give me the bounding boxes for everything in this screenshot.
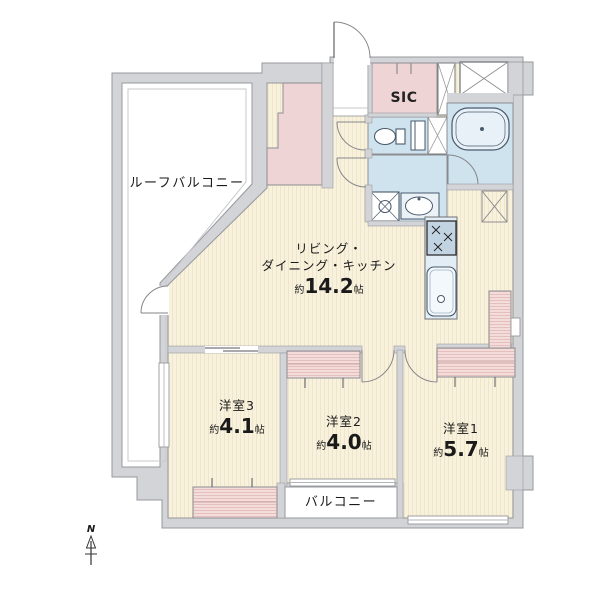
bedroom1-name: 洋室1 (433, 421, 488, 438)
vanity-sink-icon (401, 193, 439, 219)
entrance-door (334, 22, 370, 65)
bedroom3-size: 約4.1帖 (209, 415, 264, 437)
bedroom3-size-unit: 帖 (255, 425, 265, 436)
closet-bedroom2 (287, 351, 360, 378)
bedroom3-name: 洋室3 (209, 398, 264, 415)
stove-icon (427, 221, 456, 255)
bedroom1-size: 約5.7帖 (433, 438, 488, 460)
balcony-label: バルコニー (305, 494, 377, 512)
ldk-label-line1: リビング・ (261, 241, 396, 258)
bedroom1-size-approx: 約 (433, 448, 443, 459)
bedroom2-size-value: 4.0 (326, 430, 361, 454)
bedroom3-size-value: 4.1 (219, 414, 254, 438)
bedroom1-size-value: 5.7 (443, 437, 478, 461)
toilet-icon (375, 129, 406, 145)
pipe-shaft-2 (428, 117, 447, 154)
roof-balcony-label: ルーフバルコニー (130, 175, 245, 193)
ldk-size-unit: 帖 (354, 285, 364, 296)
ldk-size-value: 14.2 (304, 274, 353, 298)
bedroom1-label: 洋室1 約5.7帖 (433, 421, 488, 460)
ldk-size: 約14.2帖 (261, 275, 396, 297)
bedroom2-size-unit: 帖 (362, 441, 372, 452)
bedroom2-label: 洋室2 約4.0帖 (316, 414, 371, 453)
washing-machine-icon (371, 192, 399, 221)
bathtub-icon (452, 108, 509, 150)
bedroom2-size-approx: 約 (316, 441, 326, 452)
bedroom3-label: 洋室3 約4.1帖 (209, 398, 264, 437)
floor-plan-drawing (0, 0, 600, 600)
north-arrow-icon (85, 536, 97, 565)
closet-bedroom3 (193, 487, 277, 518)
bedroom3-sliding-door (205, 346, 258, 353)
toilet-cabinet-icon (411, 121, 425, 150)
ldk-label: リビング・ ダイニング・キッチン 約14.2帖 (261, 241, 396, 297)
elevator-shaft (460, 62, 508, 95)
bedroom1-size-unit: 帖 (479, 448, 489, 459)
wall-band-below-elevator (447, 93, 513, 103)
sic-label: SIC (390, 89, 417, 108)
bedroom2-name: 洋室2 (316, 414, 371, 431)
bedroom3-size-approx: 約 (209, 425, 219, 436)
north-label: N (87, 523, 95, 537)
wall-block-top-right (508, 62, 523, 95)
floor-plan: ルーフバルコニー SIC リビング・ ダイニング・キッチン 約14.2帖 洋室3… (0, 0, 600, 600)
kitchen-sink-icon (427, 267, 456, 316)
bedroom2-size: 約4.0帖 (316, 431, 371, 453)
ldk-size-approx: 約 (294, 285, 304, 296)
ldk-label-line2: ダイニング・キッチン (261, 258, 396, 275)
